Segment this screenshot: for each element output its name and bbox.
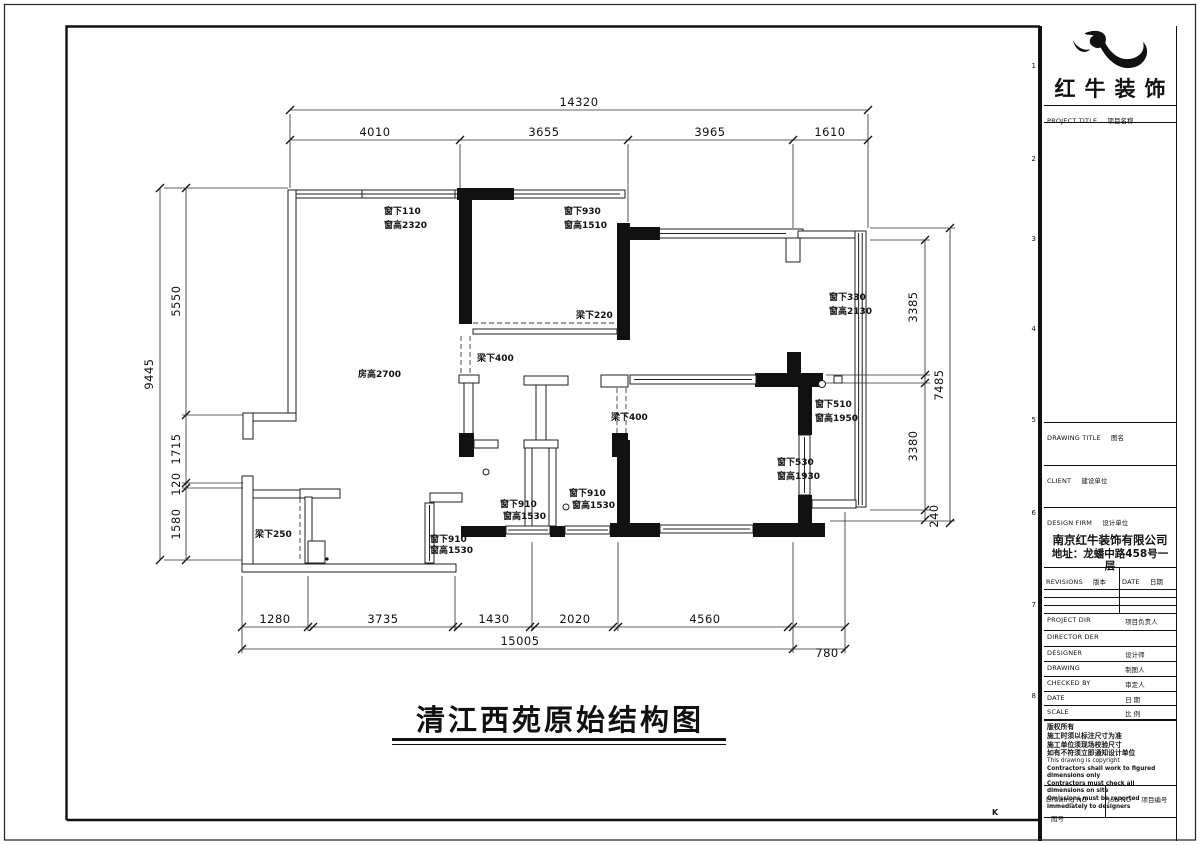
dimension-text: 7485 (932, 369, 946, 400)
dimension-text: 240 (927, 504, 941, 527)
dimension-text: 120 (169, 472, 183, 495)
dimension-text: 1610 (814, 125, 845, 139)
revisions-table: REVISIONS 版本 DATE 日期 (1044, 568, 1176, 614)
job-no-field: Job NO 项目编号 (1106, 786, 1176, 817)
dimension-text: 3380 (906, 430, 920, 461)
dimension-text: 1280 (259, 612, 290, 626)
plan-annotation: 窗下530 (777, 456, 814, 468)
plan-annotation: 窗下110 (384, 205, 421, 217)
plan-annotation: 窗下910 (569, 487, 606, 499)
checked-by-field: CHECKED BY 审定人 (1044, 677, 1176, 692)
design-firm-name: 南京红牛装饰有限公司 (1047, 532, 1173, 548)
grid-number: 5 (1024, 416, 1036, 424)
plan-annotation: 窗高2130 (829, 305, 872, 317)
title-block-footer (1044, 818, 1176, 841)
note-line-cn: 版权所有 (1047, 723, 1173, 732)
plan-annotation: 梁下400 (476, 352, 514, 364)
plan-annotation: 窗高1510 (564, 219, 607, 231)
dimension-text: 2020 (559, 612, 590, 626)
note-line-en: This drawing is copyright (1047, 758, 1173, 766)
plan-annotation: 梁下250 (254, 528, 292, 540)
grid-number: 3 (1024, 235, 1036, 243)
project-title-field (1044, 123, 1176, 423)
drawing-by-field: DRAWING 制图人 (1044, 662, 1176, 677)
dimension-text: 780 (815, 646, 838, 660)
revision-row-empty (1044, 598, 1176, 606)
dimension-text: 1715 (169, 433, 183, 464)
drawing-number-section: Drawing NO 图号 Job NO 项目编号 (1044, 786, 1176, 818)
plan-annotation: 窗下510 (815, 398, 852, 410)
plan-annotation: 窗高1530 (572, 499, 615, 511)
design-firm-field: DESIGN FIRM 设计单位 南京红牛装饰有限公司 地址：龙蟠中路458号一… (1044, 508, 1176, 568)
dimension-text: 14320 (559, 95, 598, 109)
note-line-en-bold: Contractors shall work to figured dimens… (1047, 766, 1173, 781)
company-name: 红牛装饰 (1055, 73, 1175, 103)
drawing-sheet: 窗下110窗高2320窗下930窗高1510梁下220梁下400房高2700窗下… (0, 0, 1200, 845)
title-block: 红牛装饰 PROJECT TITLE 项目名称 DRAWING TITLE 图名… (1044, 26, 1177, 841)
client-field: CLIENT 建设单位 (1044, 466, 1176, 508)
plan-annotation: 梁下220 (575, 309, 613, 321)
copyright-notes: 版权所有施工时须以标注尺寸为准施工单位须现场校验尺寸如有不符须立即通知设计单位 … (1044, 720, 1176, 786)
corner-mark: K (992, 808, 998, 817)
plan-annotation: 窗下330 (829, 291, 866, 303)
plan-annotation: 梁下400 (610, 411, 648, 423)
dimension-text: 3965 (694, 125, 725, 139)
grid-number: 7 (1024, 601, 1036, 609)
grid-number: 1 (1024, 62, 1036, 70)
dimension-text: 3385 (906, 291, 920, 322)
plan-annotation: 房高2700 (358, 368, 401, 380)
dimension-text: 4560 (689, 612, 720, 626)
director-field: DIRECTOR DER (1044, 631, 1176, 647)
date-header: DATE 日期 (1120, 568, 1176, 589)
dimension-text: 4010 (359, 125, 390, 139)
plan-annotation: 窗高1950 (815, 412, 858, 424)
grid-number: 4 (1024, 325, 1036, 333)
plan-annotation: 窗高2320 (384, 219, 427, 231)
plan-annotation: 窗高1930 (777, 470, 820, 482)
drawing-main-title: 清江西苑原始结构图 (390, 697, 730, 739)
bull-logo-icon (1064, 29, 1156, 73)
project-title-label: PROJECT TITLE 项目名称 (1044, 106, 1176, 123)
dimension-text: 3655 (528, 125, 559, 139)
date-field: DATE 日 期 (1044, 692, 1176, 706)
scale-field: SCALE 比 例 (1044, 706, 1176, 720)
grid-number: 8 (1024, 692, 1036, 700)
plan-annotation: 窗下930 (564, 205, 601, 217)
project-dir-field: PROJECT DIR 项目负责人 (1044, 614, 1176, 631)
drawing-title-field: DRAWING TITLE 图名 (1044, 423, 1176, 466)
plan-annotation: 窗高1530 (503, 510, 546, 522)
grid-number: 6 (1024, 509, 1036, 517)
note-line-cn: 施工时须以标注尺寸为准 (1047, 732, 1173, 741)
plan-annotation: 窗下910 (430, 533, 467, 545)
revisions-header: REVISIONS 版本 (1044, 568, 1120, 589)
company-logo-section: 红牛装饰 (1044, 26, 1176, 106)
title-underline-thin (392, 744, 726, 745)
dimension-text: 1430 (478, 612, 509, 626)
dimension-text: 15005 (500, 634, 539, 648)
grid-number: 2 (1024, 155, 1036, 163)
revision-row-empty (1044, 606, 1176, 613)
designer-field: DESIGNER 设计师 (1044, 647, 1176, 662)
walls-layer (242, 188, 866, 572)
dimension-text: 5550 (169, 285, 183, 316)
dimension-text: 9445 (142, 358, 156, 389)
plan-annotation: 窗高1530 (430, 544, 473, 556)
dimension-text: 1580 (169, 508, 183, 539)
drawing-no-field: Drawing NO 图号 (1044, 786, 1106, 817)
note-line-cn: 如有不符须立即通知设计单位 (1047, 749, 1173, 758)
plan-annotation: 窗下910 (500, 498, 537, 510)
dimension-text: 3735 (367, 612, 398, 626)
revision-row-empty (1044, 590, 1176, 598)
title-underline-thick (392, 738, 726, 741)
